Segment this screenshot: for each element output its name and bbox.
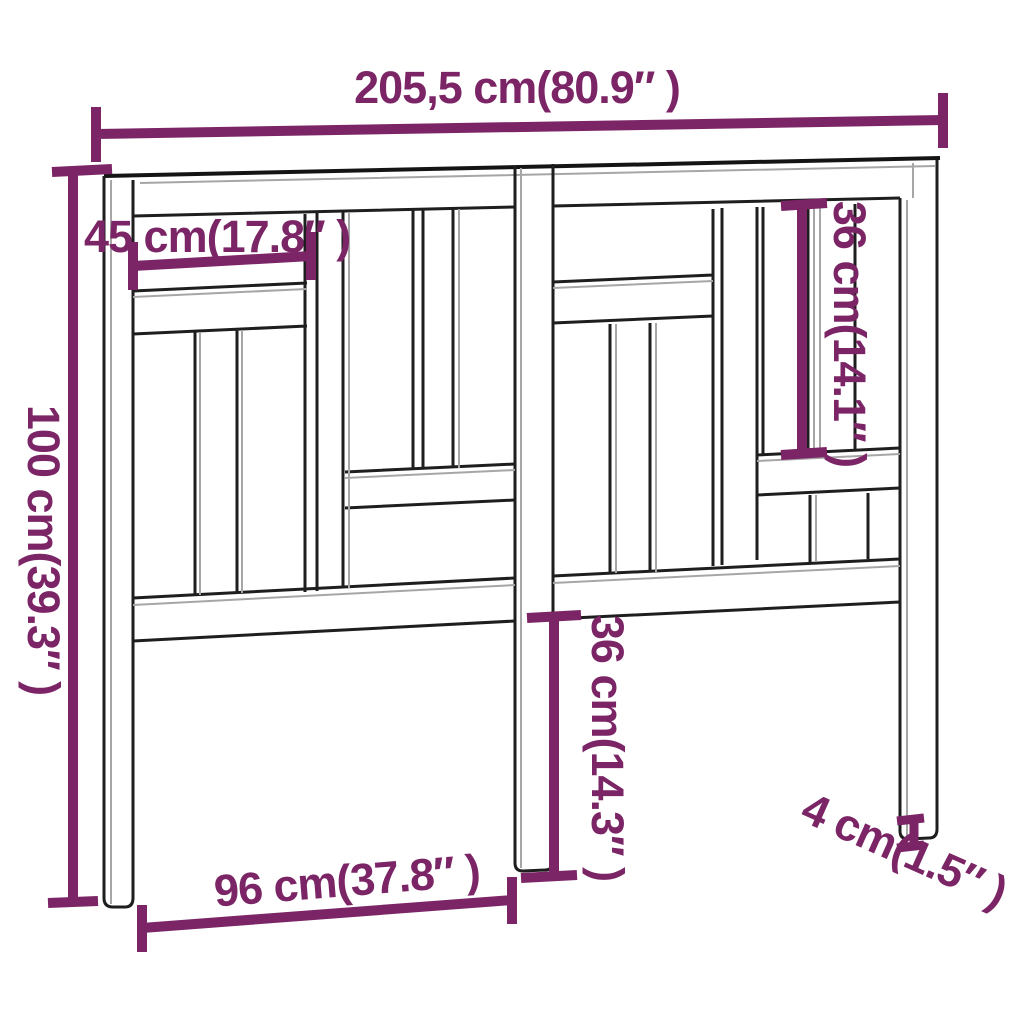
dim-leg-thickness-label: 4 cm(1.5″ ) xyxy=(794,782,1014,917)
dim-total-width-label: 205,5 cm(80.9″ ) xyxy=(354,62,680,113)
dim-total-width: 205,5 cm(80.9″ ) xyxy=(96,62,943,162)
dim-center-leg-height-label: 36 cm(14.3″ ) xyxy=(582,615,633,881)
dim-right-slat-height: 36 cm(14.1″ ) xyxy=(781,201,875,467)
right-leg-outline xyxy=(900,160,937,839)
dim-leg-thickness: 4 cm(1.5″ ) xyxy=(794,782,1014,917)
middle-left-panel-highlights xyxy=(345,209,515,588)
dim-inner-leg-span: 96 cm(37.8″ ) xyxy=(142,844,512,952)
dim-center-leg-height-line xyxy=(521,615,581,878)
middle-left-panel-lines xyxy=(343,209,515,588)
left-panel-highlights xyxy=(133,289,307,595)
dim-total-height: 100 cm(39.3″ ) xyxy=(18,169,112,903)
dim-center-leg-height: 36 cm(14.3″ ) xyxy=(521,615,633,881)
headboard-diagram-svg: 205,5 cm(80.9″ ) 45 cm(17.8″ ) 100 cm(39… xyxy=(0,0,1024,1024)
dim-left-rail-width: 45 cm(17.8″ ) xyxy=(84,211,350,290)
left-panel-lines xyxy=(133,213,317,595)
dim-left-rail-width-label: 45 cm(17.8″ ) xyxy=(84,211,350,262)
dim-right-slat-height-label: 36 cm(14.1″ ) xyxy=(824,201,875,467)
dim-total-height-label: 100 cm(39.3″ ) xyxy=(18,405,69,695)
product-dimension-diagram: 205,5 cm(80.9″ ) 45 cm(17.8″ ) 100 cm(39… xyxy=(0,0,1024,1024)
